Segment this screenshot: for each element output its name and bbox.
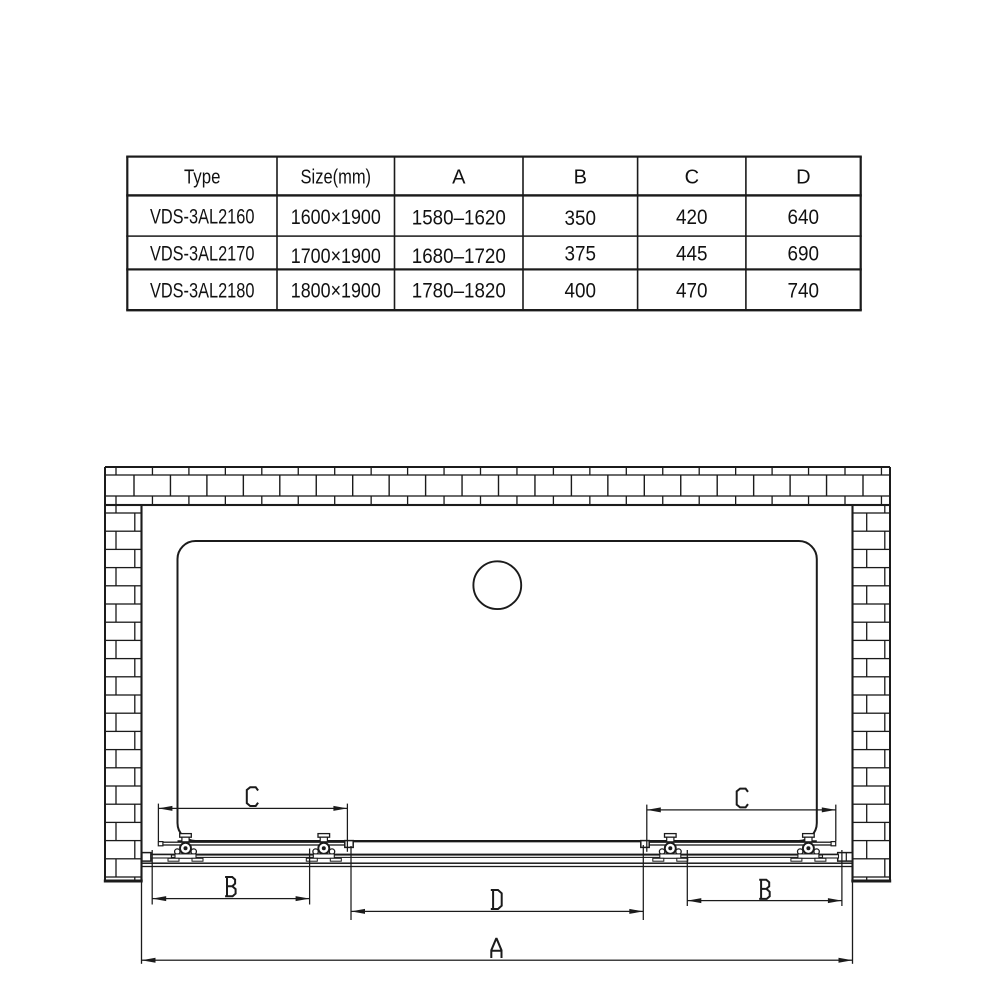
svg-text:445: 445 [676, 242, 708, 265]
svg-text:B: B [574, 167, 587, 189]
svg-text:VDS-3AL2170: VDS-3AL2170 [150, 242, 255, 265]
svg-text:1800×1900: 1800×1900 [291, 279, 381, 302]
svg-text:420: 420 [676, 206, 708, 229]
svg-text:D: D [796, 167, 810, 189]
svg-text:1600×1900: 1600×1900 [291, 206, 381, 229]
svg-text:1700×1900: 1700×1900 [291, 245, 381, 268]
svg-text:1580–1620: 1580–1620 [412, 206, 506, 229]
svg-text:C: C [685, 167, 699, 189]
svg-text:VDS-3AL2160: VDS-3AL2160 [150, 206, 255, 229]
svg-text:470: 470 [676, 279, 708, 302]
svg-text:1780–1820: 1780–1820 [412, 279, 506, 302]
svg-text:Size(mm): Size(mm) [301, 167, 372, 189]
svg-text:690: 690 [788, 242, 820, 265]
svg-text:A: A [452, 167, 466, 189]
svg-text:740: 740 [788, 279, 820, 302]
svg-text:350: 350 [565, 207, 597, 230]
svg-text:640: 640 [788, 206, 820, 229]
svg-text:1680–1720: 1680–1720 [412, 245, 506, 268]
svg-text:VDS-3AL2180: VDS-3AL2180 [150, 279, 255, 302]
svg-text:375: 375 [565, 242, 597, 265]
svg-text:400: 400 [565, 279, 597, 302]
svg-text:Type: Type [184, 167, 221, 189]
